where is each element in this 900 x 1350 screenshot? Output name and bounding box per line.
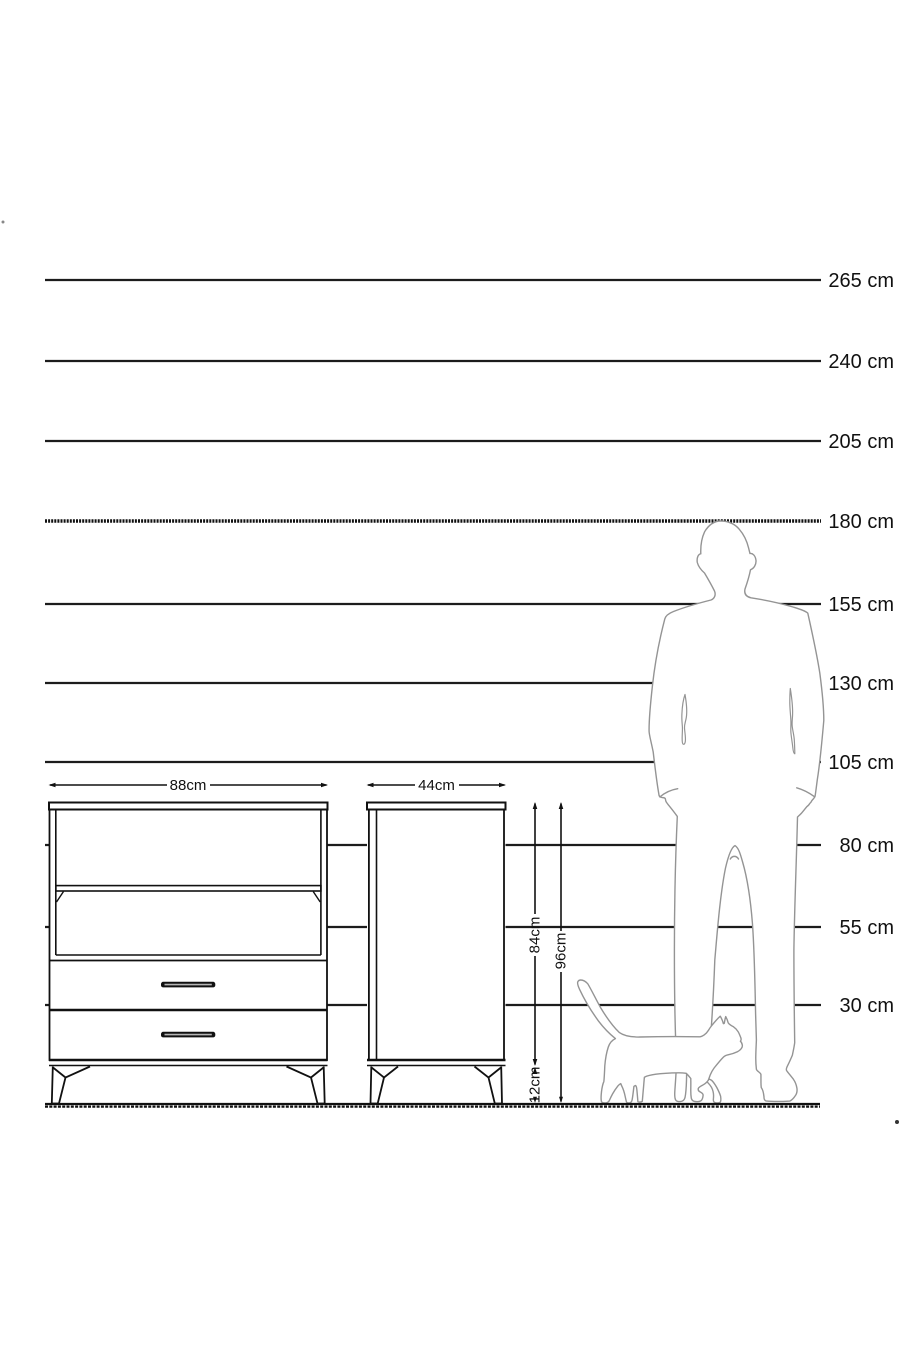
svg-text:55 cm: 55 cm [840, 917, 894, 939]
svg-text:240 cm: 240 cm [828, 351, 894, 373]
svg-text:44cm: 44cm [418, 777, 455, 794]
svg-text:96cm: 96cm [553, 933, 570, 970]
svg-text:205 cm: 205 cm [828, 431, 894, 453]
svg-text:88cm: 88cm [170, 777, 207, 794]
svg-text:30 cm: 30 cm [840, 995, 894, 1017]
svg-text:155 cm: 155 cm [828, 594, 894, 616]
svg-text:12cm: 12cm [527, 1067, 544, 1104]
svg-text:265 cm: 265 cm [828, 270, 894, 292]
svg-text:84cm: 84cm [527, 917, 544, 954]
svg-text:80 cm: 80 cm [840, 835, 894, 857]
svg-text:130 cm: 130 cm [828, 673, 894, 695]
svg-text:105 cm: 105 cm [828, 752, 894, 774]
svg-text:180 cm: 180 cm [828, 511, 894, 533]
